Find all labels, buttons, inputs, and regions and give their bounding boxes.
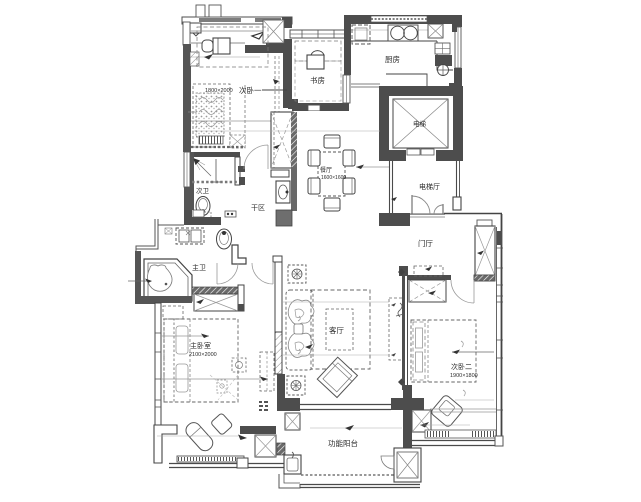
svg-text:电梯厅: 电梯厅 xyxy=(419,182,440,191)
svg-text:次卫: 次卫 xyxy=(196,186,210,195)
svg-text:客厅: 客厅 xyxy=(329,325,344,335)
svg-text:次卧二: 次卧二 xyxy=(451,362,472,371)
svg-text:门厅: 门厅 xyxy=(418,239,433,248)
svg-text:主卧室: 主卧室 xyxy=(190,341,211,350)
svg-text:厨房: 厨房 xyxy=(385,54,400,64)
svg-text:干区: 干区 xyxy=(251,204,265,212)
svg-text:1600×1600: 1600×1600 xyxy=(321,175,346,181)
svg-text:主卫: 主卫 xyxy=(192,263,206,272)
svg-text:1800×2000: 1800×2000 xyxy=(205,88,233,94)
svg-text:次卧一: 次卧一 xyxy=(239,85,262,95)
svg-text:1900×1800: 1900×1800 xyxy=(450,373,478,379)
svg-text:餐厅: 餐厅 xyxy=(320,166,332,174)
svg-text:功能阳台: 功能阳台 xyxy=(328,438,358,448)
svg-text:电梯: 电梯 xyxy=(413,119,427,128)
svg-text:2100×2000: 2100×2000 xyxy=(189,352,217,358)
svg-text:书房: 书房 xyxy=(310,75,325,85)
